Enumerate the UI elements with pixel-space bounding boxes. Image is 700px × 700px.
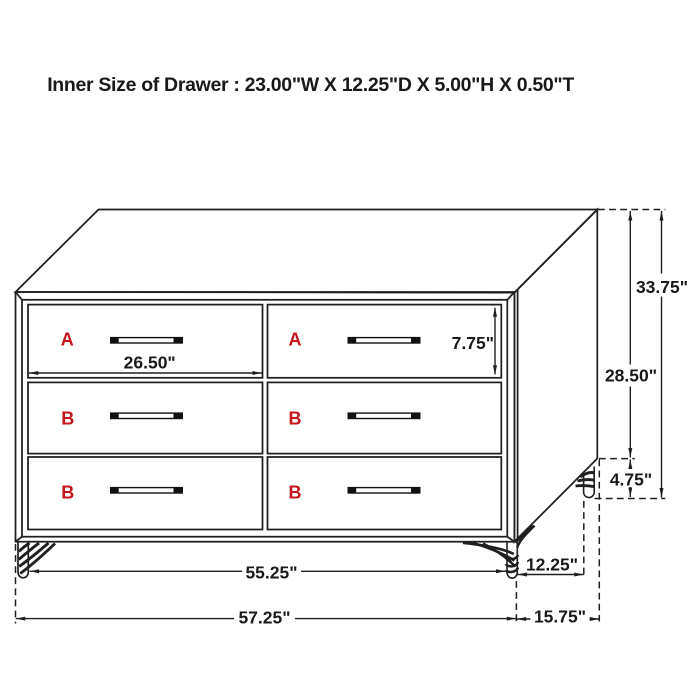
svg-text:57.25": 57.25"	[238, 608, 290, 628]
svg-text:A: A	[289, 330, 302, 350]
svg-text:B: B	[61, 483, 74, 503]
svg-text:B: B	[289, 483, 302, 503]
svg-text:Inner Size of Drawer : 23.00"W: Inner Size of Drawer : 23.00"W X 12.25"D…	[47, 74, 574, 96]
svg-text:7.75": 7.75"	[452, 333, 494, 353]
svg-text:28.50": 28.50"	[605, 366, 657, 386]
svg-text:33.75": 33.75"	[636, 277, 688, 297]
svg-text:15.75": 15.75"	[534, 607, 586, 627]
svg-text:4.75": 4.75"	[610, 470, 652, 490]
svg-text:B: B	[289, 408, 302, 428]
svg-text:A: A	[61, 330, 74, 350]
svg-text:55.25": 55.25"	[245, 563, 297, 583]
svg-text:B: B	[61, 408, 74, 428]
svg-text:12.25": 12.25"	[526, 554, 578, 574]
svg-text:26.50": 26.50"	[124, 352, 176, 372]
